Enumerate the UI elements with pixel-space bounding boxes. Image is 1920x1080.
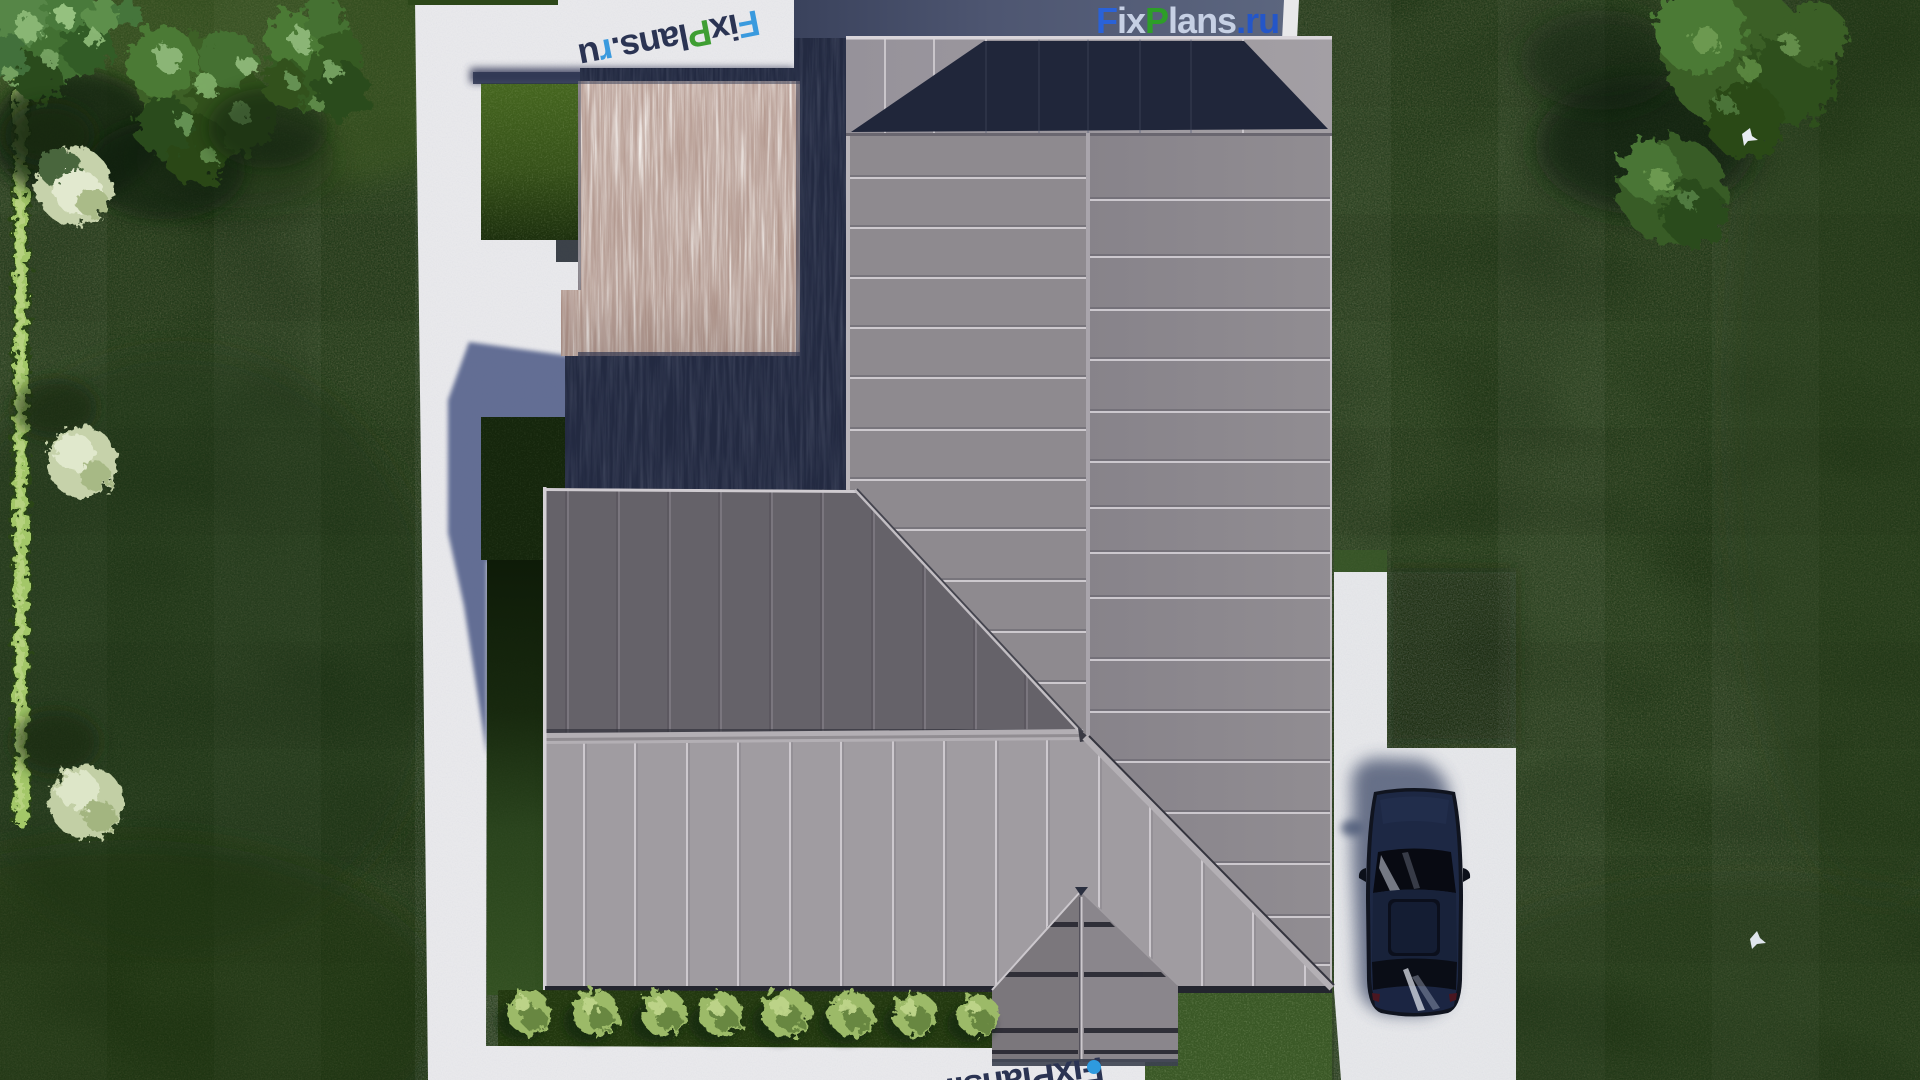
svg-text:FixPlans.ru: FixPlans.ru	[1096, 0, 1279, 41]
